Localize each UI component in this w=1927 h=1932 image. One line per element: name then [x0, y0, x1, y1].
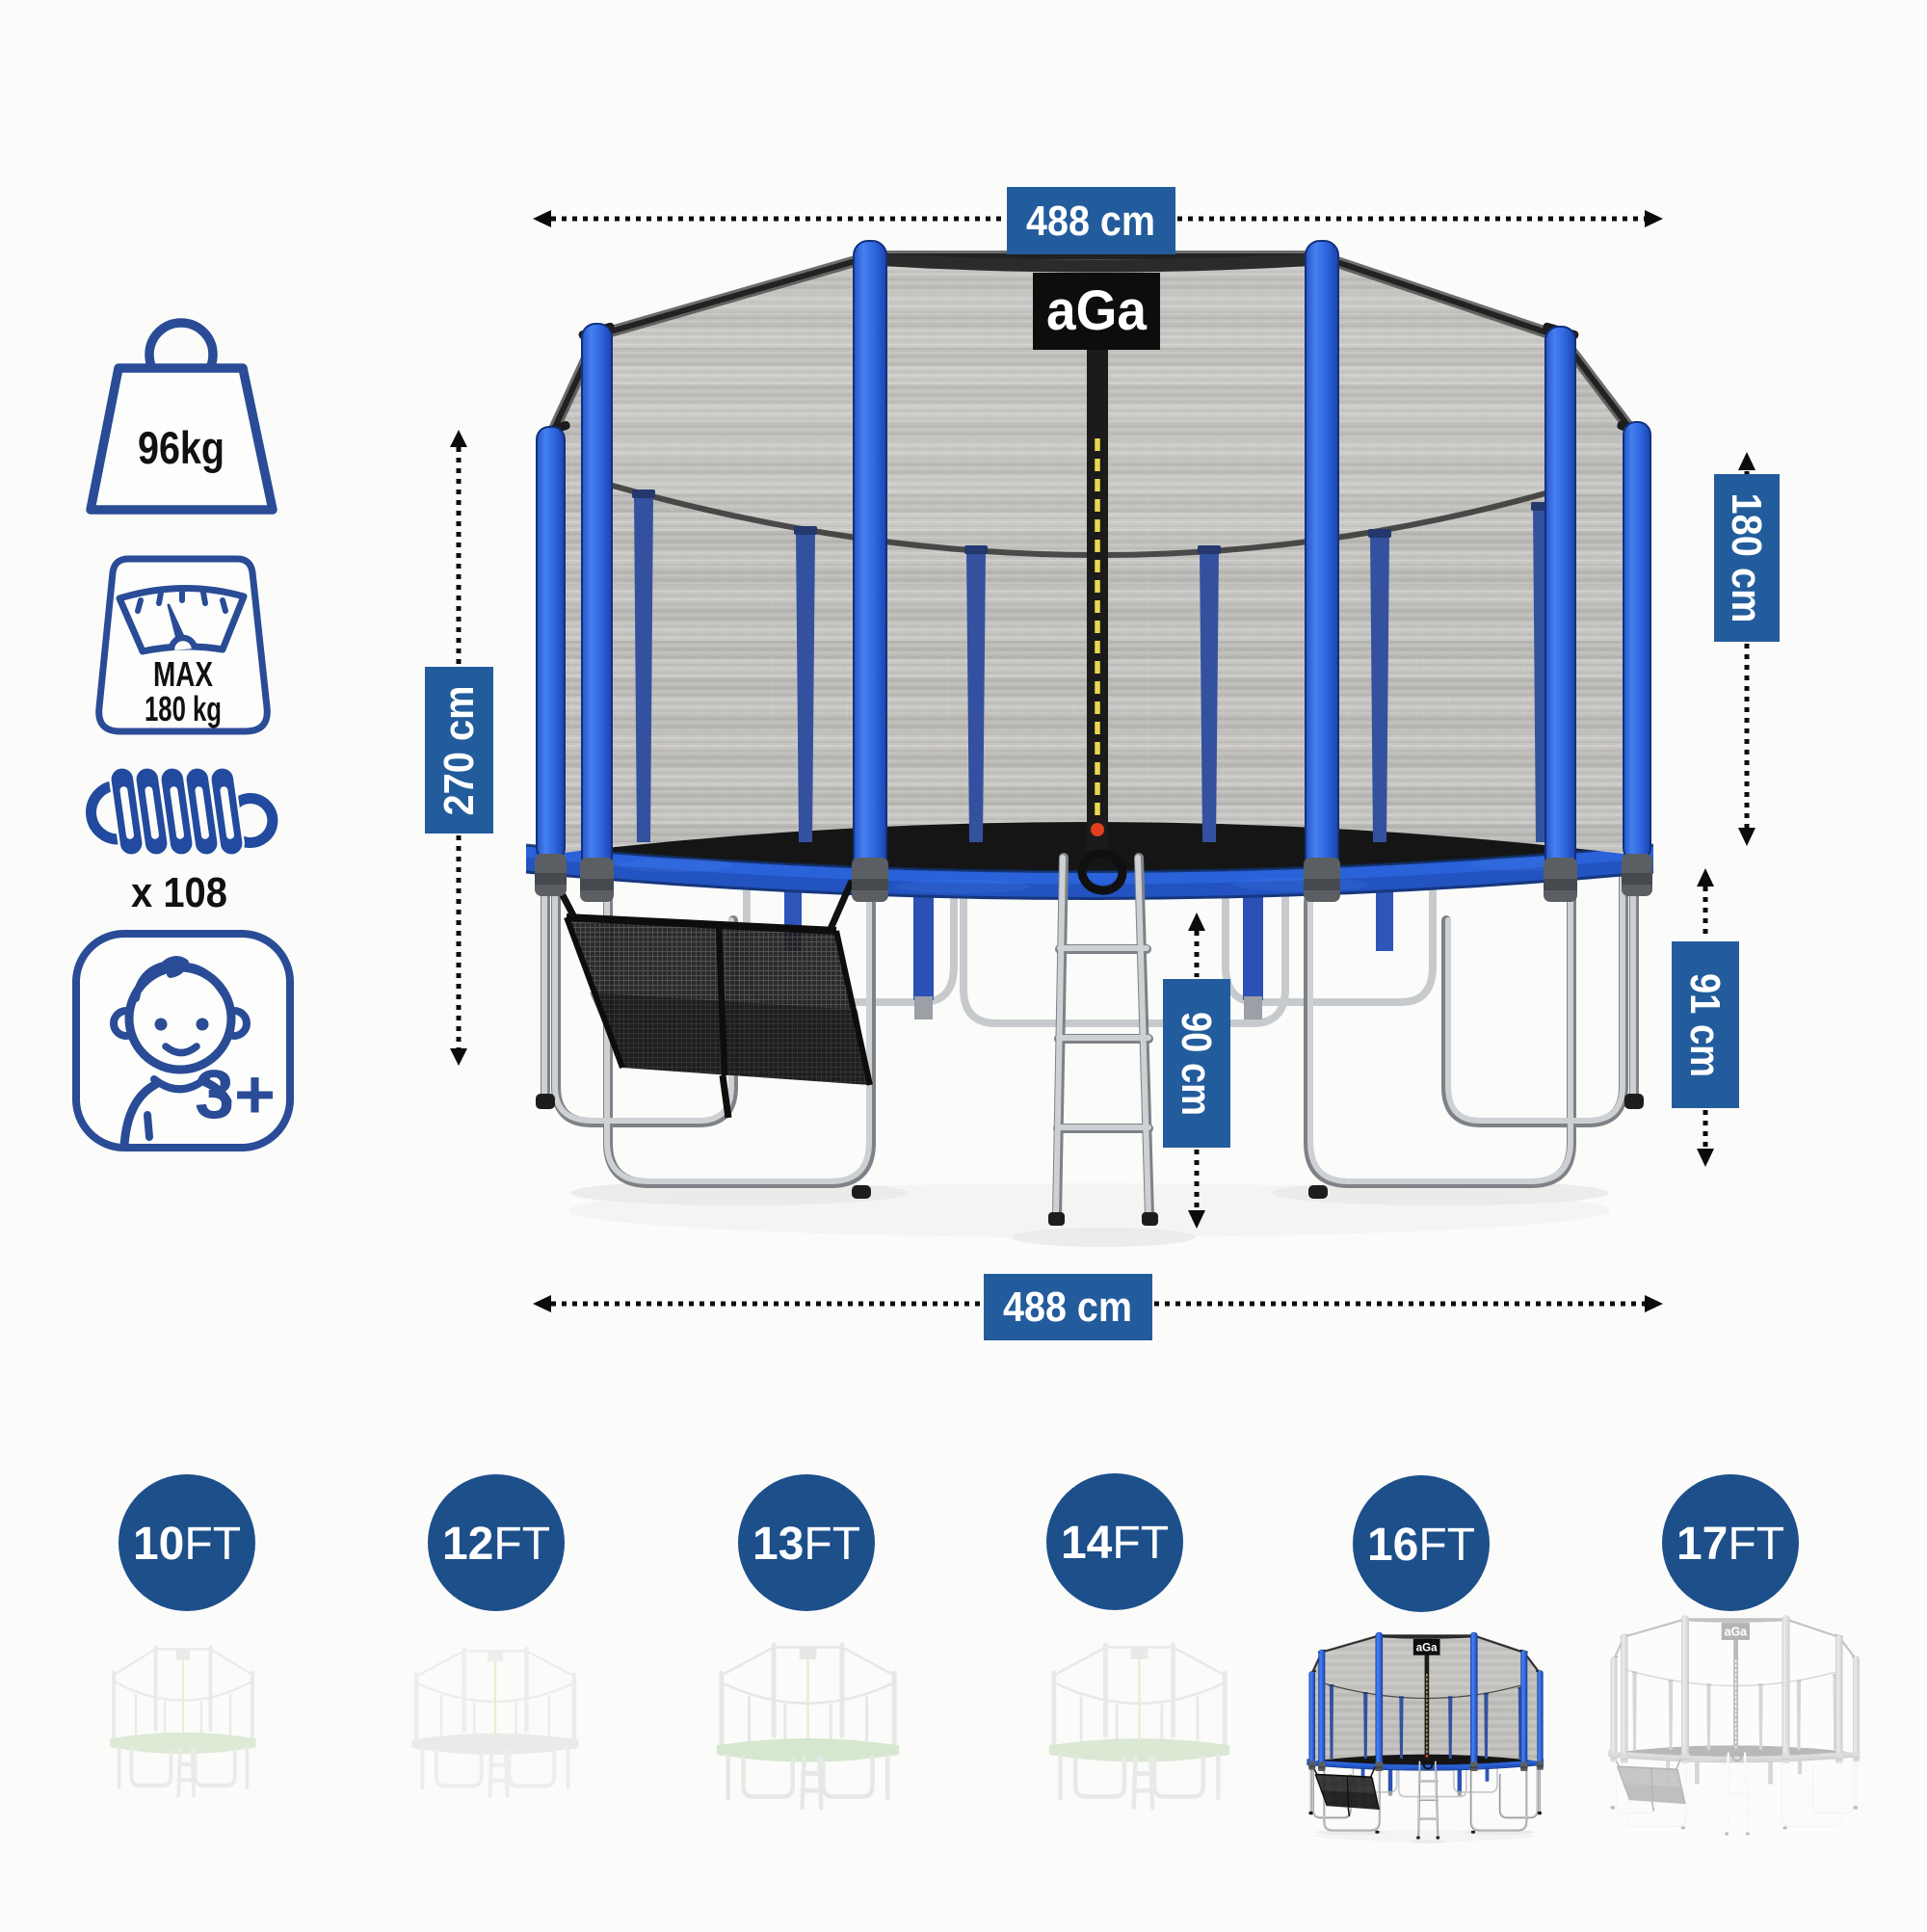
svg-text:270 cm: 270 cm [436, 686, 483, 816]
svg-text:16FT: 16FT [1367, 1520, 1475, 1571]
svg-text:90 cm: 90 cm [1173, 1012, 1220, 1116]
svg-text:aGa: aGa [1046, 279, 1148, 342]
svg-text:10FT: 10FT [133, 1519, 241, 1570]
svg-text:17FT: 17FT [1676, 1519, 1784, 1570]
svg-text:180 kg: 180 kg [145, 689, 222, 728]
svg-text:13FT: 13FT [752, 1519, 860, 1570]
svg-text:96kg: 96kg [138, 422, 224, 473]
svg-text:14FT: 14FT [1061, 1518, 1169, 1569]
svg-text:91 cm: 91 cm [1681, 973, 1729, 1077]
svg-text:180 cm: 180 cm [1723, 493, 1770, 623]
svg-text:12FT: 12FT [442, 1519, 550, 1570]
svg-text:488 cm: 488 cm [1003, 1284, 1132, 1331]
svg-text:MAX: MAX [153, 654, 213, 694]
svg-text:3+: 3+ [195, 1057, 276, 1133]
svg-text:488 cm: 488 cm [1026, 198, 1155, 245]
svg-text:x 108: x 108 [131, 869, 227, 916]
